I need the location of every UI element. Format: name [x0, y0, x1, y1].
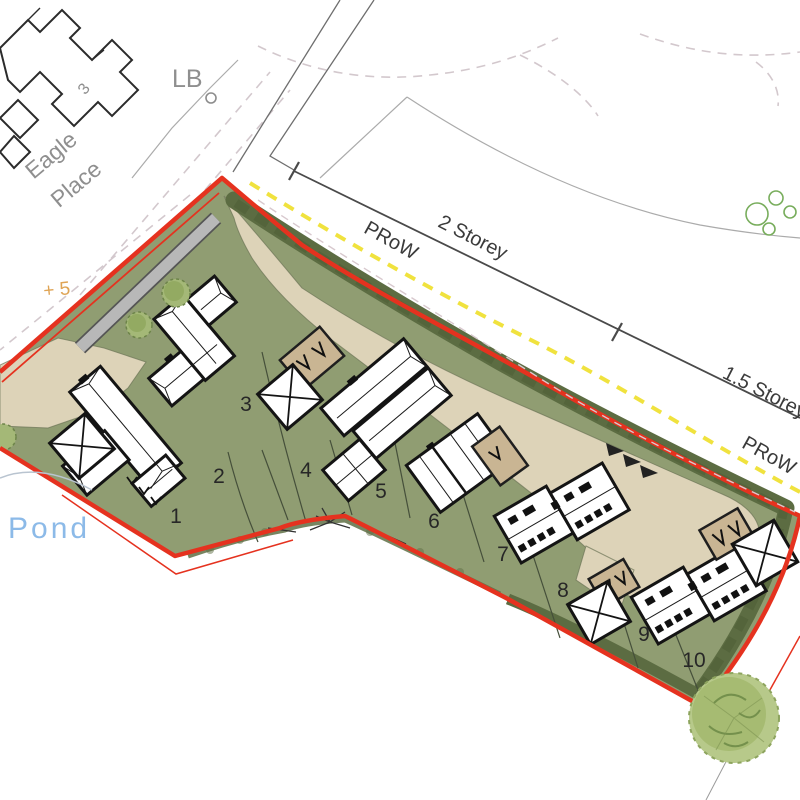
plot-number-8: 8	[557, 579, 569, 602]
sketch-tree	[784, 206, 796, 218]
lane-edge-line	[233, 0, 340, 172]
plot-number-2: 2	[213, 465, 225, 488]
plot-number-7: 7	[497, 543, 509, 566]
tree	[162, 279, 190, 307]
prow-label-top: PRoW	[360, 217, 421, 264]
boundary-offsite-thin-line	[766, 636, 800, 697]
large-tree	[689, 673, 779, 763]
plot-number-5: 5	[375, 480, 387, 503]
storey-2-label: 2 Storey	[435, 211, 511, 264]
dimension-tick	[612, 323, 622, 341]
terrace-outline	[0, 100, 38, 138]
plot-number-9: 9	[638, 623, 650, 646]
tree-canopy-shade	[128, 314, 146, 332]
road-dashed-line	[205, 90, 290, 190]
lane-dashed-curve	[258, 38, 558, 77]
storey-1-5-label: 1.5 Storey	[719, 362, 800, 423]
letter-box-label: LB	[172, 65, 203, 93]
tree	[126, 312, 152, 338]
lb-post-circle	[206, 93, 216, 103]
plot-number-10: 10	[682, 649, 705, 672]
site-plan-drawing: Eagle Place 3 LB + 5 Pond PRoW 2 Storey …	[0, 0, 800, 800]
lane-dashed-curve	[520, 55, 598, 116]
dimension-tick	[289, 162, 299, 180]
site-plan-page: Eagle Place 3 LB + 5 Pond PRoW 2 Storey …	[0, 0, 800, 800]
level-mark-label: + 5	[42, 278, 71, 302]
lane-dashed-curve	[640, 34, 800, 55]
plot-number-4: 4	[300, 459, 312, 482]
plot-number-1: 1	[170, 505, 182, 528]
prow-label-right: PRoW	[738, 432, 799, 479]
pond-label: Pond	[8, 512, 90, 545]
tree-canopy-shade	[164, 281, 184, 301]
sketch-tree	[769, 191, 783, 205]
plot-number-6: 6	[428, 510, 440, 533]
field-boundary-line	[320, 97, 407, 178]
plot-number-3: 3	[240, 393, 252, 416]
lane-dashed-curve	[756, 62, 778, 106]
sketch-tree-group	[746, 191, 796, 235]
sketch-tree	[746, 203, 768, 225]
field-boundary-line	[407, 97, 800, 238]
lane-edge-line	[270, 0, 374, 170]
sketch-tree	[763, 223, 775, 235]
lane-edges	[233, 0, 374, 172]
